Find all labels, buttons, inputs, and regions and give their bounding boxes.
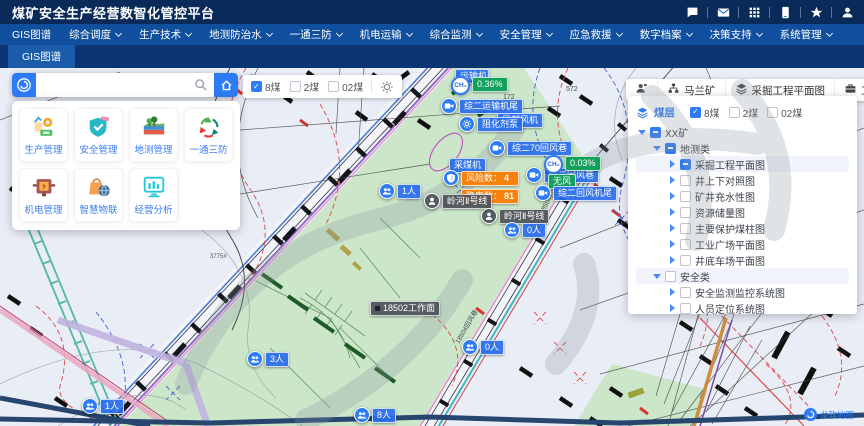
gear-inhibitor-pump[interactable]: 阻化剂泵 — [459, 116, 523, 132]
nav-item-label: 生产技术 — [139, 27, 181, 42]
map-area[interactable]: 1725723775#18504胶带巷18504回风巷 生产管理安全管理地测管理… — [0, 68, 864, 426]
marker-label: 0人 — [480, 340, 504, 355]
nav-item-4[interactable]: 一通三防 — [290, 27, 342, 42]
chevron-down-icon — [616, 29, 623, 36]
divider — [738, 7, 739, 18]
chevron-down-icon — [546, 29, 553, 36]
marker-label: 综二70回风巷 — [507, 141, 572, 156]
chevron-down-icon — [826, 29, 833, 36]
risk-row: 风险数：4 — [461, 171, 519, 186]
mail-icon[interactable] — [716, 5, 730, 19]
nav-item-label: 一通三防 — [290, 27, 332, 42]
divider — [831, 7, 832, 18]
nav-item-2[interactable]: 生产技术 — [139, 27, 191, 42]
marker-label: 综二回风机尾 — [553, 186, 617, 201]
nav-item-label: 数字档案 — [640, 27, 682, 42]
tab-strip: GIS图谱 — [0, 45, 864, 68]
marker-label: 阻化剂泵 — [477, 117, 523, 132]
people-count-8[interactable]: 8人 — [354, 407, 396, 423]
star-icon[interactable] — [809, 5, 823, 19]
workface-tag[interactable]: 18502工作面 — [370, 300, 440, 316]
tab-gis[interactable]: GIS图谱 — [8, 45, 75, 68]
chevron-down-icon — [686, 29, 693, 36]
nav-item-label: GIS图谱 — [12, 27, 51, 42]
nav-item-label: 地测防治水 — [209, 27, 262, 42]
marker-label: 岭河Ⅱ号线 — [442, 194, 492, 209]
gas-value-label: 0.36% — [472, 77, 508, 92]
people-count-1b[interactable]: 1人 — [82, 398, 124, 414]
chat-icon[interactable] — [685, 5, 699, 19]
divider — [769, 7, 770, 18]
nav-item-label: 应急救援 — [570, 27, 612, 42]
app-root: 煤矿安全生产经营数智化管控平台 GIS图谱综合调度生产技术地测防治水一通三防机电… — [0, 0, 864, 426]
ch4-sensor-1[interactable]: CH₄0.36% — [451, 76, 508, 95]
shield-icon — [443, 170, 459, 186]
nav-item-1[interactable]: 综合调度 — [69, 27, 121, 42]
nav-item-6[interactable]: 综合监测 — [430, 27, 482, 42]
nav-item-8[interactable]: 应急救援 — [570, 27, 622, 42]
gear-icon — [459, 116, 475, 132]
nav-item-7[interactable]: 安全管理 — [500, 27, 552, 42]
map-vendor-logo: 龙软地图 — [804, 408, 854, 421]
ch4-sensor-2[interactable]: CH₄0.03% — [544, 155, 601, 174]
divider — [800, 7, 801, 18]
chevron-down-icon — [185, 29, 192, 36]
person-icon — [481, 208, 497, 224]
nav-item-label: 安全管理 — [500, 27, 542, 42]
app-header: 煤矿安全生产经营数智化管控平台 — [0, 0, 864, 24]
chevron-down-icon — [476, 29, 483, 36]
camera-return-tail[interactable]: 综二回风机尾 — [535, 185, 617, 201]
people-icon — [354, 407, 370, 423]
nav-item-label: 综合监测 — [430, 27, 472, 42]
vendor-logo-icon — [804, 408, 817, 421]
marker-label: 8人 — [372, 408, 396, 423]
header-icons — [685, 5, 854, 19]
camera-icon — [441, 98, 457, 114]
camera-icon — [526, 167, 542, 183]
mobile-icon[interactable] — [778, 5, 792, 19]
marker-label: 18502工作面 — [370, 301, 440, 316]
marker-label: 0人 — [522, 223, 546, 238]
app-title: 煤矿安全生产经营数智化管控平台 — [12, 3, 215, 22]
nav-item-label: 综合调度 — [69, 27, 111, 42]
chevron-down-icon — [756, 29, 763, 36]
main-nav: GIS图谱综合调度生产技术地测防治水一通三防机电运输综合监测安全管理应急救援数字… — [0, 24, 864, 45]
people-count-1a[interactable]: 1人 — [379, 183, 421, 199]
people-count-0b[interactable]: 0人 — [462, 339, 504, 355]
camera-70-return[interactable]: 综二70回风巷 — [489, 140, 572, 156]
nav-item-3[interactable]: 地测防治水 — [209, 27, 272, 42]
people-icon — [462, 339, 478, 355]
people-count-3[interactable]: 3人 — [247, 351, 289, 367]
nav-item-label: 系统管理 — [780, 27, 822, 42]
people-icon — [247, 351, 263, 367]
apps-icon[interactable] — [747, 5, 761, 19]
camera-icon — [489, 140, 505, 156]
nav-item-5[interactable]: 机电运输 — [360, 27, 412, 42]
nav-item-0[interactable]: GIS图谱 — [12, 27, 51, 42]
vendor-logo-text: 龙软地图 — [820, 409, 854, 421]
nav-item-11[interactable]: 系统管理 — [780, 27, 832, 42]
people-icon — [379, 183, 395, 199]
people-icon — [504, 222, 520, 238]
marker-label: 1人 — [397, 184, 421, 199]
chevron-down-icon — [336, 29, 343, 36]
chevron-down-icon — [115, 29, 122, 36]
divider — [707, 7, 708, 18]
people-icon — [82, 398, 98, 414]
nav-item-label: 机电运输 — [360, 27, 402, 42]
person-line-1[interactable]: 岭河Ⅱ号线 — [424, 193, 492, 209]
marker-label: 3人 — [265, 352, 289, 367]
ch4-sensor-icon: CH₄ — [451, 76, 470, 95]
user-icon[interactable] — [840, 5, 854, 19]
gas-value-label: 0.03% — [565, 156, 601, 171]
map-markers: 运输机头CH₄0.36%综二运输机尾局部风机阻化剂泵综二70回风巷综二回风巷CH… — [0, 68, 864, 426]
ch4-sensor-icon: CH₄ — [544, 155, 563, 174]
chevron-down-icon — [266, 29, 273, 36]
nav-item-label: 决策支持 — [710, 27, 752, 42]
marker-label: 1人 — [100, 399, 124, 414]
chevron-down-icon — [406, 29, 413, 36]
equipment-icon — [375, 306, 380, 311]
camera-icon — [535, 185, 551, 201]
people-count-0a[interactable]: 0人 — [504, 222, 546, 238]
nav-item-9[interactable]: 数字档案 — [640, 27, 692, 42]
nav-item-10[interactable]: 决策支持 — [710, 27, 762, 42]
person-icon — [424, 193, 440, 209]
